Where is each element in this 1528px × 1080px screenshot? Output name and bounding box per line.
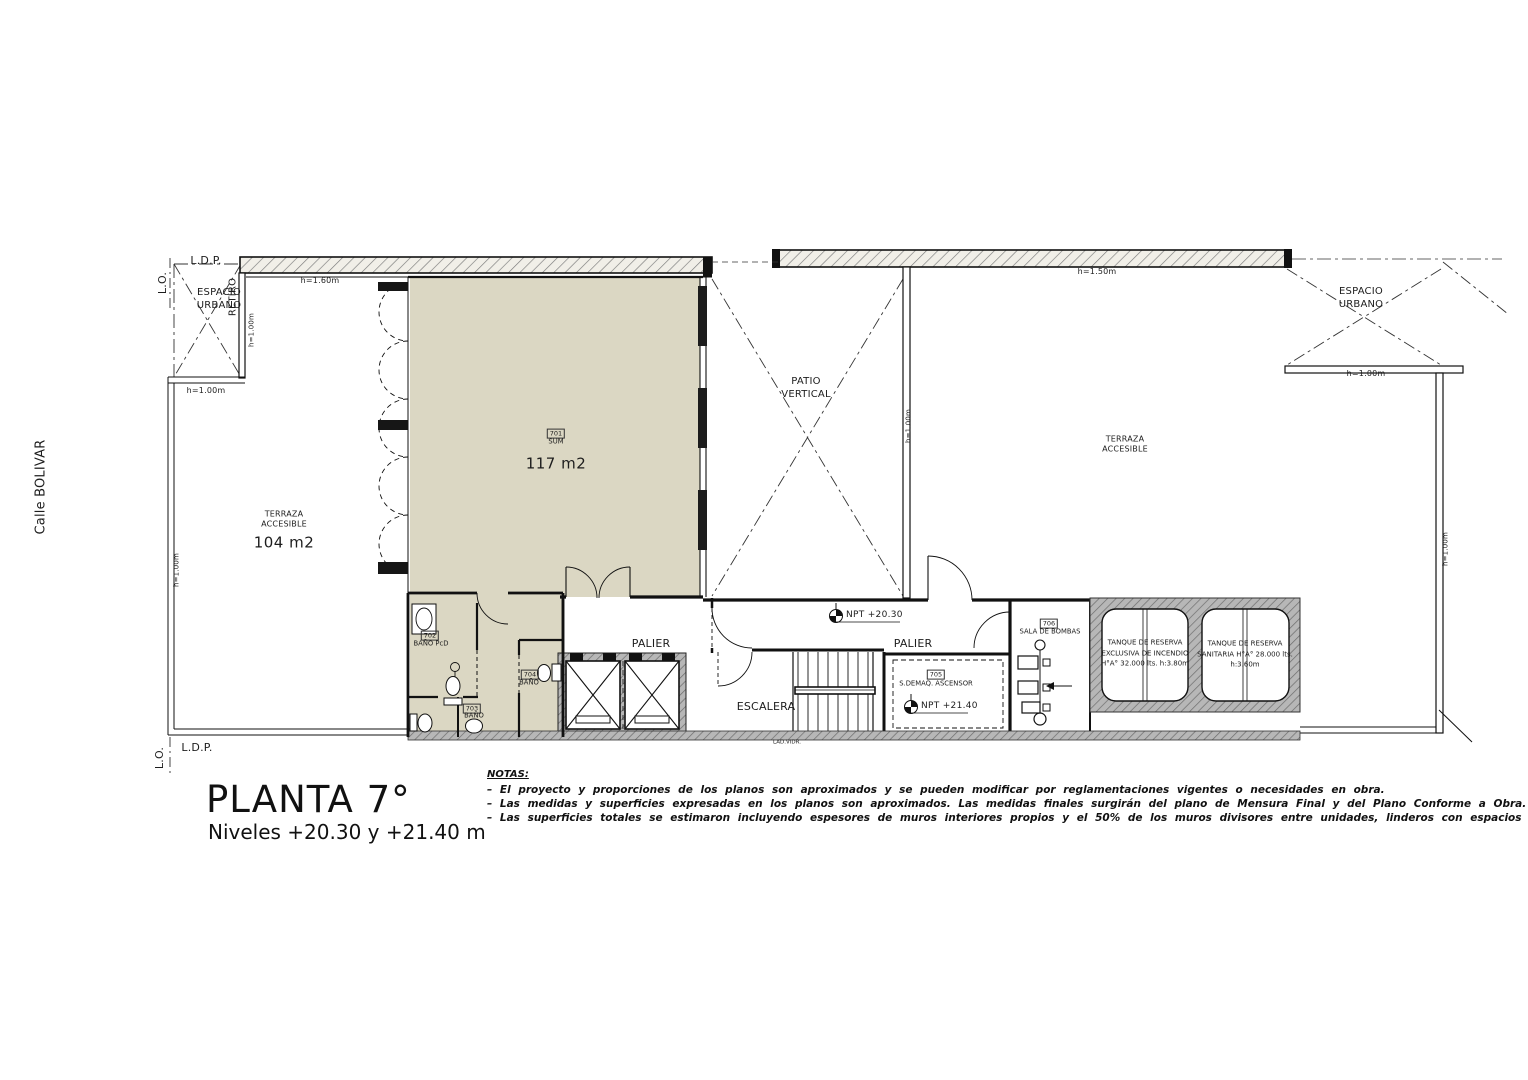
espacio-urbano-right-label: ESPACIO URBANO (1339, 285, 1384, 311)
retiro-label: RETIRO (227, 278, 240, 316)
banio-704-name: BAÑO (519, 679, 539, 688)
machine-room-name: S.DEMAQ. ASCENSOR (899, 680, 973, 689)
note-line-3: – Las superficies totales se estimaron i… (487, 812, 1528, 824)
palier-1-label: PALIER (632, 637, 671, 651)
height-right-edge-label: h=1.00m (1441, 532, 1450, 566)
sheet-title: PLANTA 7° (206, 778, 411, 821)
terraza-left-area: 104 m2 (254, 533, 315, 553)
note-line-2: – Las medidas y superficies expresadas e… (487, 798, 1526, 810)
terraza-right-name: TERRAZA ACCESIBLE (1102, 435, 1148, 456)
banio-703-name: BAÑO (464, 712, 484, 721)
espacio-urbano-left-zone (170, 258, 241, 377)
palier-2-label: PALIER (894, 637, 933, 651)
height-top-right-label: h=1.50m (1078, 267, 1117, 277)
sum-room-name: SUM (548, 438, 563, 447)
tank-incendio-label: TANQUE DE RESERVA EXCLUSIVA DE INCENDIO … (1101, 637, 1189, 669)
escalera-label: ESCALERA (737, 700, 796, 714)
sheet-subtitle: Niveles +20.30 y +21.40 m (208, 820, 486, 844)
patio-vertical-label: PATIO VERTICAL (781, 375, 830, 401)
height-left-lower-label: h=1.00m (172, 553, 181, 587)
pump-room-name: SALA DE BOMBAS (1020, 628, 1081, 637)
tank-sanitaria-label: TANQUE DE RESERVA SANITARIA H°A° 28.000 … (1197, 638, 1293, 670)
patio-vertical-zone (712, 279, 903, 596)
elevator-shafts (558, 653, 686, 738)
height-left-step-label: h=1.00m (187, 386, 226, 396)
banio-pcd-name: BAÑO PcD (414, 640, 449, 649)
height-right-step-label: h=1.00m (1347, 369, 1386, 379)
npt-high-label: NPT +21.40 (921, 701, 978, 711)
notes-heading: NOTAS: (487, 769, 529, 780)
lo-bottom-label: L.O. (153, 747, 167, 769)
ldp-bottom-label: L.D.P. (181, 741, 212, 755)
parapet-walls (240, 249, 1502, 277)
ldp-top-label: L.D.P. (190, 254, 221, 268)
npt-low-label: NPT +20.30 (846, 610, 903, 620)
core-bottom-wall (408, 731, 1300, 740)
floor-plan-drawing (0, 0, 1528, 1080)
floor-plan-sheet: Calle BOLIVAR L.O. L.D.P. ESPACIO URBANO… (0, 0, 1528, 1080)
machine-room (884, 600, 1010, 735)
height-left-upper-label: h=1.00m (247, 313, 256, 347)
terraza-left-name: TERRAZA ACCESIBLE (261, 510, 307, 531)
height-top-left-label: h=1.60m (301, 276, 340, 286)
street-label: Calle BOLIVAR (34, 440, 51, 535)
lad-vidr-label: LAD.VIDR. (773, 739, 801, 746)
height-patio-wall-label: h=1.00m (904, 409, 913, 443)
lo-top-label: L.O. (156, 272, 170, 294)
note-line-1: – El proyecto y proporciones de los plan… (487, 784, 1385, 796)
staircase (718, 650, 884, 739)
sum-room-area: 117 m2 (526, 454, 587, 474)
machine-room-number: 705 (927, 670, 945, 680)
